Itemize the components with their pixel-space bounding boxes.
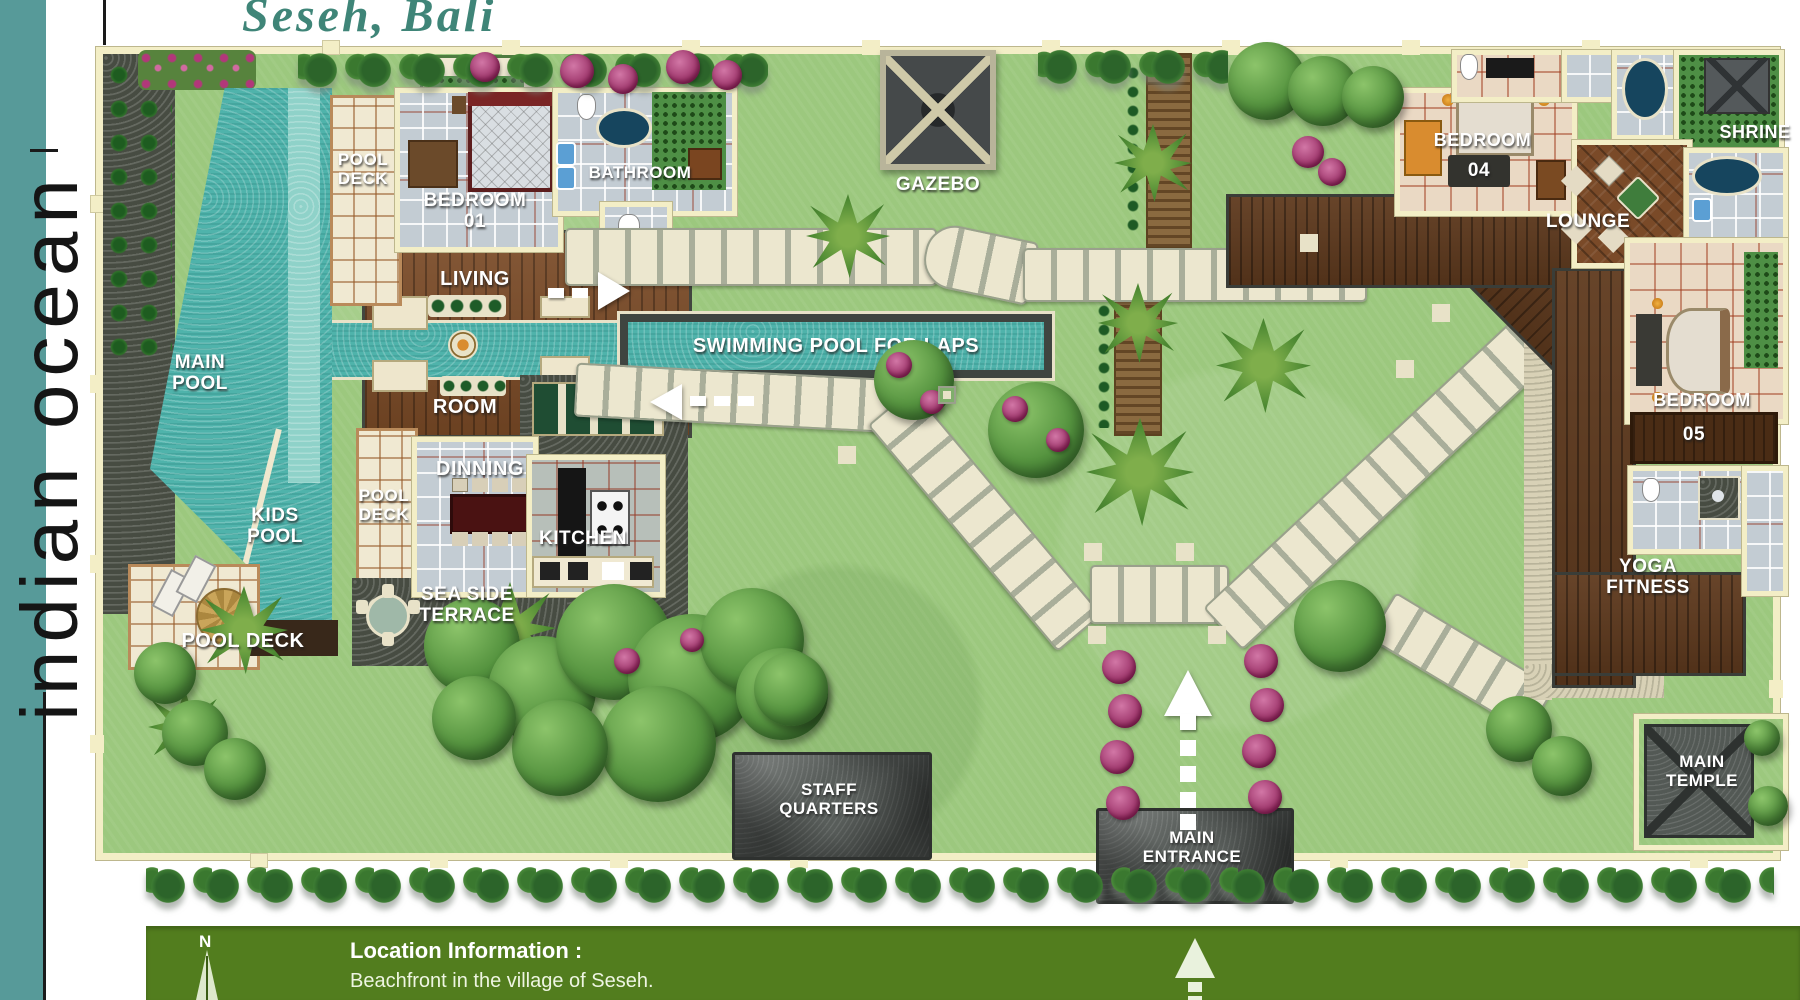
tree bbox=[1532, 736, 1592, 796]
ocean-rule-bottom bbox=[43, 692, 46, 1000]
label-pool-deck-top: POOL DECK bbox=[330, 150, 396, 188]
entrance-arrow-stem bbox=[1180, 714, 1196, 730]
label-main-pool: MAIN POOL bbox=[150, 352, 250, 395]
sofa-c bbox=[540, 296, 590, 318]
flower-cluster bbox=[1106, 786, 1140, 820]
info-bar-arrow-icon bbox=[1175, 938, 1215, 978]
planter-bottom bbox=[440, 376, 506, 396]
bedroom-04-number-plate: 04 bbox=[1448, 155, 1510, 187]
flower-cluster bbox=[1244, 644, 1278, 678]
flower-cluster bbox=[1108, 694, 1142, 728]
fountain-rosette bbox=[448, 330, 478, 360]
flower-cluster bbox=[1318, 158, 1346, 186]
kitchen-appliances bbox=[532, 556, 654, 588]
toilet bbox=[577, 94, 596, 120]
flower-cluster bbox=[1002, 396, 1028, 422]
info-bar-arrow-stem bbox=[1188, 982, 1202, 992]
flower-cluster bbox=[666, 50, 700, 84]
label-gazebo: GAZEBO bbox=[878, 174, 998, 195]
label-bedroom-05-number: 05 bbox=[1664, 424, 1724, 445]
ocean-tick bbox=[30, 149, 58, 152]
tree bbox=[1294, 580, 1386, 672]
hedge-bottom bbox=[146, 854, 1774, 912]
temple-bush bbox=[1748, 786, 1788, 826]
desk-05 bbox=[1636, 314, 1662, 386]
path-v-bottom bbox=[1090, 565, 1229, 624]
flower-cluster bbox=[1046, 428, 1070, 452]
page-title: Seseh, Bali bbox=[242, 0, 496, 43]
sofa-b bbox=[372, 360, 428, 392]
lap-lane bbox=[288, 88, 320, 483]
flower-cluster bbox=[608, 64, 638, 94]
bathtub bbox=[596, 108, 652, 148]
flower-cluster bbox=[1100, 740, 1134, 774]
flower-cluster bbox=[1292, 136, 1324, 168]
label-bedroom-04: BEDROOM bbox=[1405, 130, 1560, 150]
hedge-top-east bbox=[1038, 46, 1228, 84]
shower-drain bbox=[1712, 490, 1724, 502]
dining-table bbox=[450, 494, 538, 534]
info-detail: Beachfront in the village of Seseh. bbox=[350, 970, 654, 993]
flower-cluster bbox=[712, 60, 742, 90]
sink bbox=[556, 166, 576, 190]
label-bedroom-01: BEDROOM 01 bbox=[400, 190, 550, 233]
tree bbox=[600, 686, 716, 802]
flower-cluster bbox=[680, 628, 704, 652]
label-pool-deck-mid: POOL DECK bbox=[356, 486, 412, 524]
label-shrine: SHRINE bbox=[1710, 122, 1800, 142]
label-room: ROOM bbox=[415, 396, 515, 418]
kitchen-counter bbox=[558, 468, 586, 566]
pool-deck-top bbox=[330, 95, 402, 306]
terrace-table bbox=[366, 594, 410, 638]
flower-cluster bbox=[470, 52, 500, 82]
label-bathroom: BATHROOM bbox=[575, 163, 705, 182]
temple-bush bbox=[1744, 720, 1780, 756]
label-staff-quarters: STAFF QUARTERS bbox=[732, 780, 926, 818]
label-dinning: DINNING bbox=[422, 458, 538, 480]
ocean-caption: indian ocean bbox=[4, 164, 96, 728]
bush bbox=[204, 738, 266, 800]
label-yoga-fitness: YOGA FITNESS bbox=[1596, 556, 1700, 599]
label-pool-deck-bottom: POOL DECK bbox=[155, 630, 331, 652]
dresser bbox=[408, 140, 458, 188]
fern-row bbox=[104, 58, 172, 358]
villa-site-plan: indian ocean Seseh, Bali SWIMMING POOL F… bbox=[0, 0, 1800, 1000]
flower-cluster bbox=[1102, 650, 1136, 684]
bed-05 bbox=[1666, 308, 1730, 394]
side-garden-mat bbox=[1744, 252, 1778, 368]
ocean-rule-top bbox=[103, 0, 106, 45]
toilet bbox=[1460, 54, 1478, 80]
terrace-chairs bbox=[356, 600, 368, 614]
sink bbox=[556, 142, 576, 166]
lamp bbox=[1652, 298, 1663, 309]
desk-04 bbox=[1536, 160, 1566, 200]
compass-arrow-line bbox=[206, 956, 208, 1000]
gazebo bbox=[880, 50, 996, 170]
compass-n: N bbox=[199, 932, 211, 952]
flower-cluster bbox=[560, 54, 594, 88]
vanity bbox=[1486, 58, 1534, 78]
tree bbox=[432, 676, 516, 760]
bed-01 bbox=[468, 92, 554, 192]
label-kitchen: KITCHEN bbox=[528, 528, 638, 549]
label-bedroom-05: BEDROOM bbox=[1626, 390, 1778, 410]
label-sea-side-terrace: SEA SIDE TERRACE bbox=[408, 584, 526, 627]
toilet bbox=[1642, 478, 1660, 502]
label-living: LIVING bbox=[425, 268, 525, 290]
entrance-arrow-icon bbox=[1164, 670, 1212, 716]
arrow-right-dash bbox=[548, 288, 564, 298]
bush bbox=[754, 652, 828, 726]
garden-light bbox=[938, 386, 956, 404]
tree bbox=[512, 700, 608, 796]
label-main-entrance: MAIN ENTRANCE bbox=[1096, 828, 1288, 866]
shrine-stone bbox=[1704, 58, 1770, 114]
tree bbox=[1342, 66, 1404, 128]
arrow-left-dash bbox=[690, 396, 706, 406]
flower-cluster bbox=[1250, 688, 1284, 722]
flower-border bbox=[138, 50, 256, 90]
label-lounge: LOUNGE bbox=[1533, 211, 1643, 232]
arrow-left-icon bbox=[650, 384, 682, 420]
arrow-right-icon bbox=[598, 272, 630, 310]
flower-cluster bbox=[614, 648, 640, 674]
corridor-room bbox=[1742, 466, 1788, 596]
flower-cluster bbox=[1248, 780, 1282, 814]
flower-cluster bbox=[1242, 734, 1276, 768]
info-heading: Location Information : bbox=[350, 938, 582, 964]
label-main-temple: MAIN TEMPLE bbox=[1654, 752, 1750, 790]
wall-ticks-left bbox=[90, 195, 104, 213]
headboard-01 bbox=[468, 92, 554, 106]
label-kids-pool: KIDS POOL bbox=[230, 505, 320, 548]
flower-cluster bbox=[886, 352, 912, 378]
bathtub bbox=[1622, 58, 1668, 120]
bathtub bbox=[1692, 156, 1762, 196]
planter-top bbox=[428, 295, 506, 317]
flowering-bush bbox=[988, 382, 1084, 478]
sink bbox=[1692, 198, 1712, 222]
nightstand bbox=[452, 96, 466, 114]
